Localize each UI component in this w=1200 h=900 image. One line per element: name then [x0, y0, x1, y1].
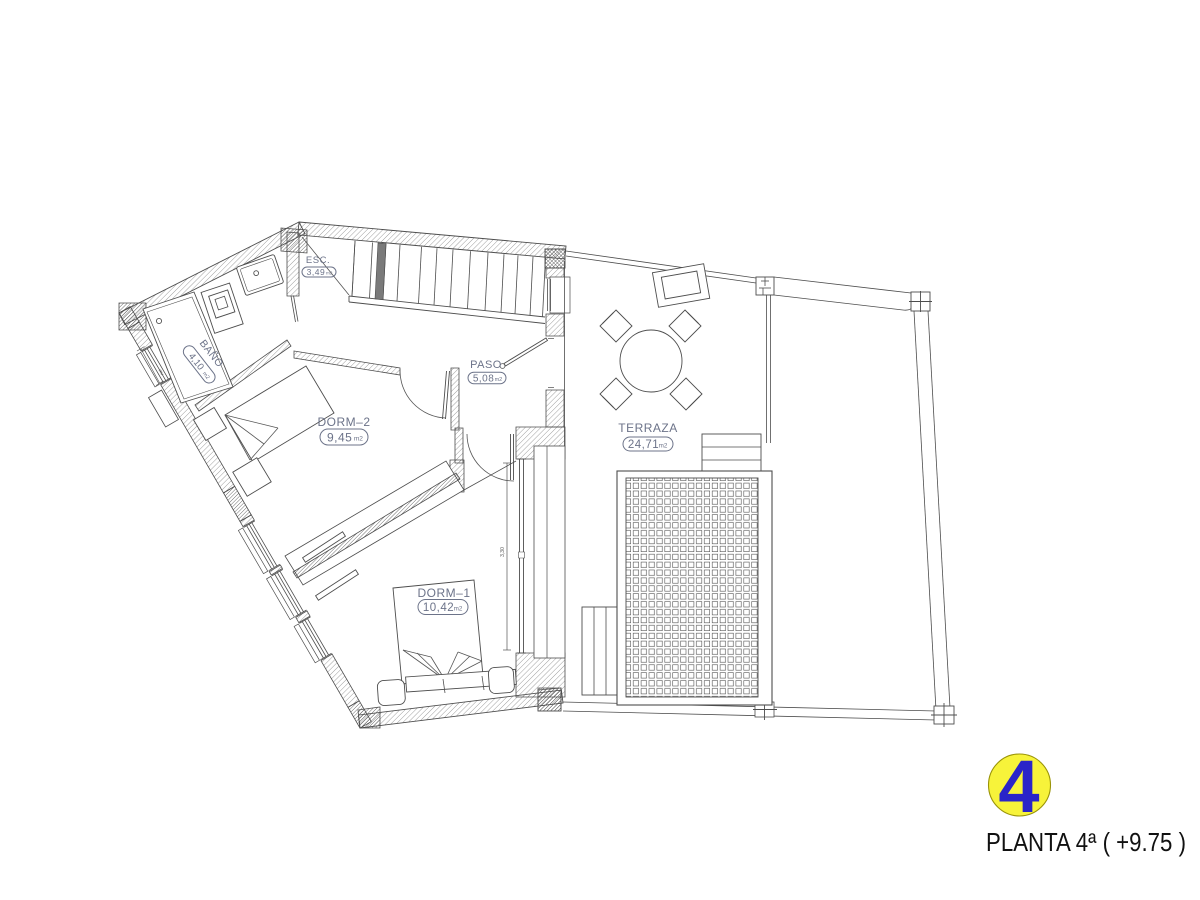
svg-text:m2: m2 [454, 605, 463, 612]
svg-text:9,45: 9,45 [327, 430, 352, 444]
svg-text:TERRAZA: TERRAZA [618, 421, 678, 435]
svg-text:3,49: 3,49 [307, 267, 326, 277]
svg-text:m2: m2 [326, 271, 333, 276]
svg-text:5,08: 5,08 [473, 374, 494, 385]
svg-text:DORM–2: DORM–2 [317, 415, 370, 429]
svg-text:m2: m2 [354, 436, 363, 443]
svg-text:ESC.: ESC. [306, 255, 330, 266]
svg-text:PASO: PASO [470, 359, 502, 371]
svg-text:PLANTA 4ª ( +9.75 ): PLANTA 4ª ( +9.75 ) [986, 827, 1186, 857]
svg-text:m2: m2 [659, 442, 668, 449]
svg-text:m2: m2 [495, 377, 503, 383]
svg-text:10,42: 10,42 [423, 602, 454, 614]
svg-text:3,30: 3,30 [500, 547, 506, 557]
svg-text:4: 4 [998, 745, 1039, 828]
svg-text:24,71: 24,71 [628, 439, 659, 451]
svg-text:DORM–1: DORM–1 [417, 586, 470, 600]
